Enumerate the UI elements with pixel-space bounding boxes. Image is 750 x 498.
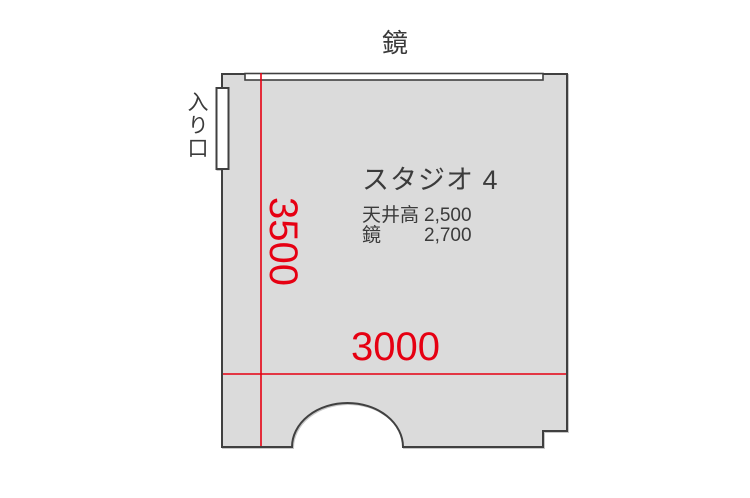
spec-row-mirror: 鏡 2,700 bbox=[362, 226, 472, 246]
door-rect bbox=[217, 88, 229, 169]
spec-value-mirror: 2,700 bbox=[424, 226, 472, 246]
mirror-strip bbox=[245, 74, 543, 81]
spec-value-ceiling: 2,500 bbox=[424, 206, 472, 226]
dim-label-vertical: 3500 bbox=[263, 197, 303, 286]
floor-plan-svg bbox=[0, 0, 750, 498]
spec-table: 天井高 2,500 鏡 2,700 bbox=[362, 206, 472, 246]
mirror-label: 鏡 bbox=[355, 29, 435, 57]
entrance-label: 入り口 bbox=[183, 91, 209, 160]
spec-row-ceiling: 天井高 2,500 bbox=[362, 206, 472, 226]
floor-plan-page: 鏡 入り口 スタジオ 4 天井高 2,500 鏡 2,700 3500 3000 bbox=[0, 0, 750, 498]
spec-label-mirror: 鏡 bbox=[362, 226, 424, 246]
room-title: スタジオ 4 bbox=[362, 166, 499, 194]
spec-label-ceiling: 天井高 bbox=[362, 206, 424, 226]
dim-label-horizontal: 3000 bbox=[351, 327, 440, 367]
